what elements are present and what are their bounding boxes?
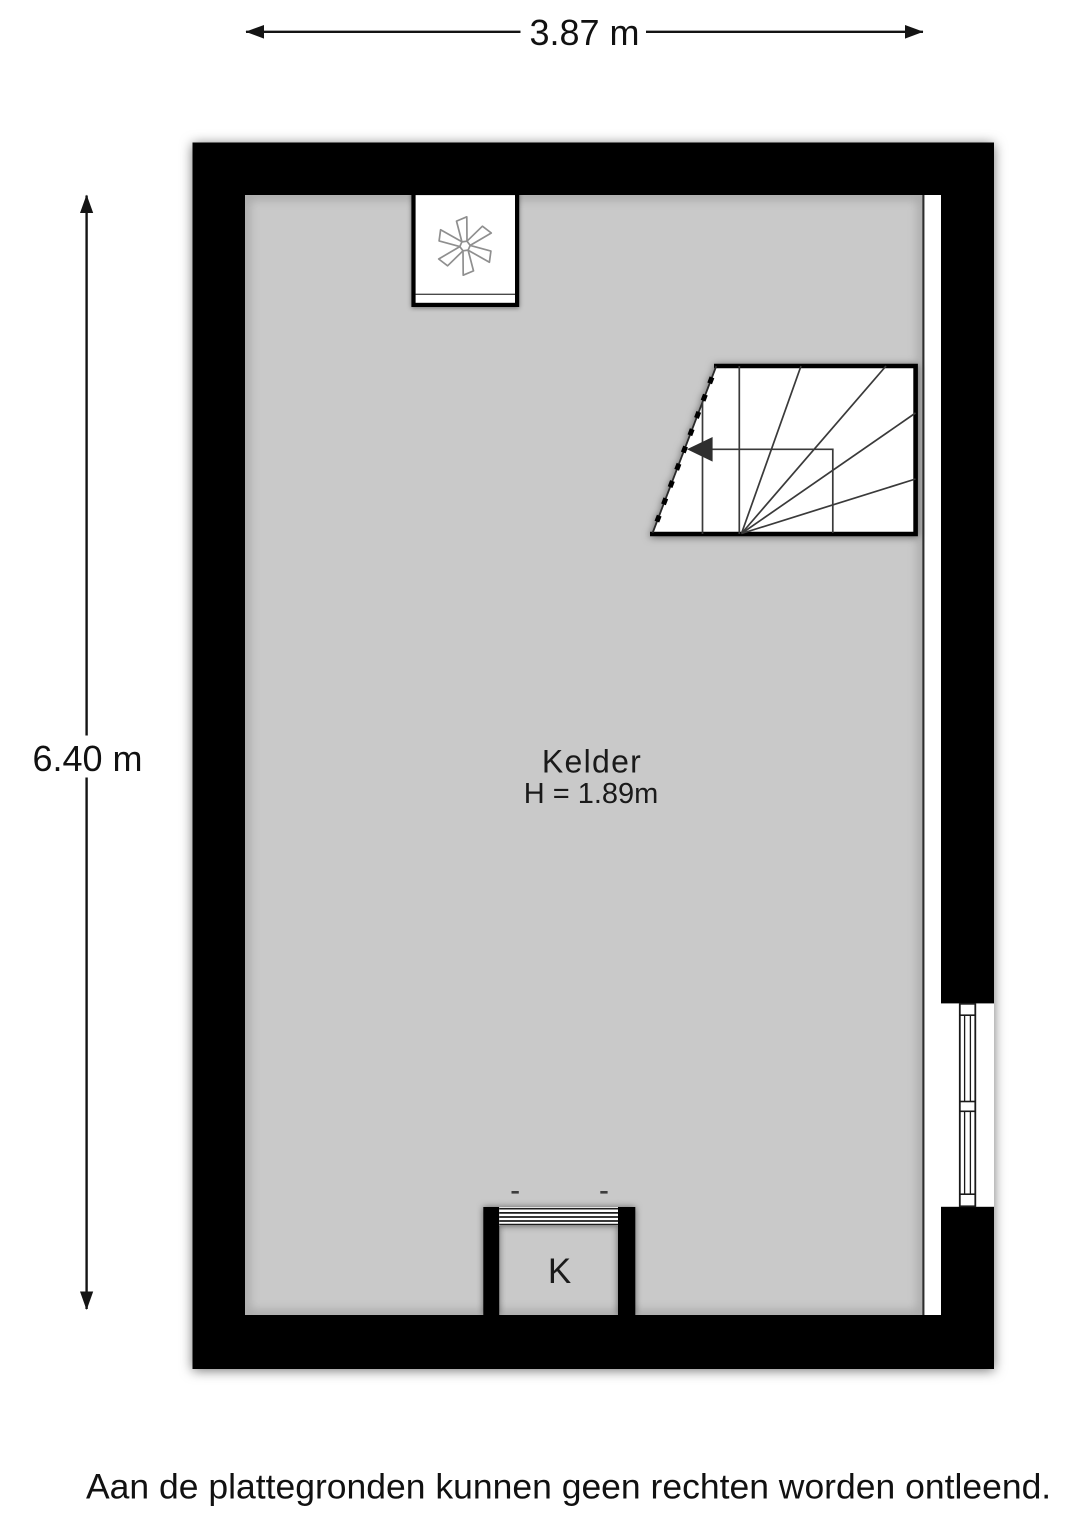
svg-text:6.40 m: 6.40 m	[32, 738, 142, 779]
svg-text:Aan de plattegronden kunnen ge: Aan de plattegronden kunnen geen rechten…	[86, 1467, 1051, 1507]
svg-text:3.87 m: 3.87 m	[529, 12, 639, 53]
svg-text:Kelder: Kelder	[542, 744, 642, 780]
svg-text:H = 1.89m: H = 1.89m	[524, 778, 659, 810]
svg-text:K: K	[548, 1252, 571, 1291]
